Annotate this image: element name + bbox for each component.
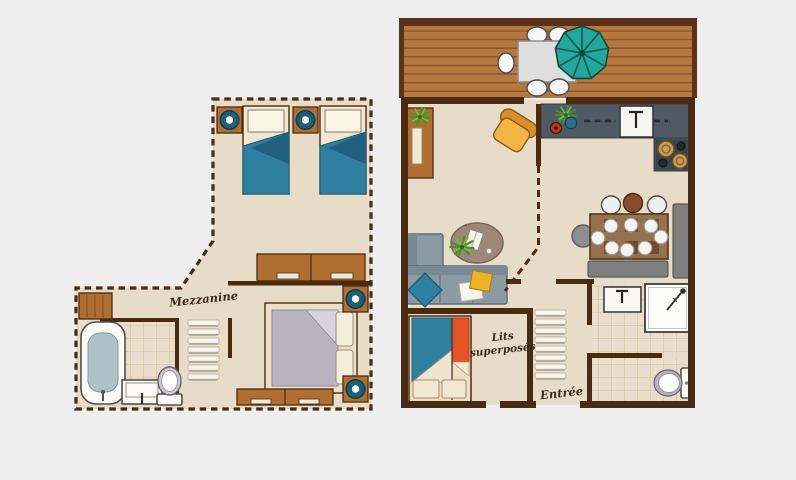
wardrobe	[79, 293, 112, 319]
patio-chair	[549, 79, 569, 95]
interior-wall	[228, 318, 232, 358]
bunk-beds-label-line1: Lits	[490, 330, 514, 344]
bathroom-sink	[604, 287, 641, 312]
toilet	[157, 367, 182, 405]
bathtub	[81, 322, 125, 404]
nightstand-with-lamp	[293, 107, 318, 133]
nightstand-with-lamp	[343, 286, 368, 312]
bunk-bed	[409, 316, 471, 402]
stove	[656, 140, 688, 169]
nightstand-with-lamp	[343, 376, 368, 402]
rug-decor	[486, 248, 491, 253]
bathroom-sink	[122, 380, 162, 404]
floor-plan-image: Mezzanine	[0, 0, 796, 480]
sofa-cushion-yellow	[470, 270, 493, 291]
dining-chair	[648, 196, 667, 214]
dining-bench	[588, 261, 668, 277]
shower	[645, 284, 690, 332]
mezzanine-plan: Mezzanine	[76, 99, 372, 409]
mezzanine-stairs	[188, 320, 219, 381]
patio-chair	[498, 53, 514, 73]
lamp-icon	[346, 380, 365, 399]
kettle	[565, 117, 577, 129]
dining-chair	[624, 194, 643, 213]
coffee-maker-dot	[554, 126, 558, 130]
dining-table	[590, 214, 668, 259]
floor-plan-canvas: Mezzanine	[0, 0, 796, 480]
lamp-icon	[220, 111, 239, 130]
dresser	[257, 254, 365, 281]
dining-chair	[602, 196, 621, 214]
kitchen-sink	[620, 106, 653, 137]
dining-bench	[673, 204, 689, 278]
nightstand-with-lamp	[217, 107, 242, 133]
lamp-icon	[346, 290, 365, 309]
patio-chair	[527, 80, 547, 96]
dresser	[237, 389, 333, 405]
wc-toilet	[654, 368, 692, 398]
twin-bed-2	[320, 106, 366, 194]
twin-bed-1	[243, 106, 289, 194]
ground-floor-plan: Lits superposés Entrée	[399, 18, 697, 408]
lamp-icon	[296, 111, 315, 130]
parasol	[555, 26, 608, 78]
interior-wall	[228, 281, 372, 286]
